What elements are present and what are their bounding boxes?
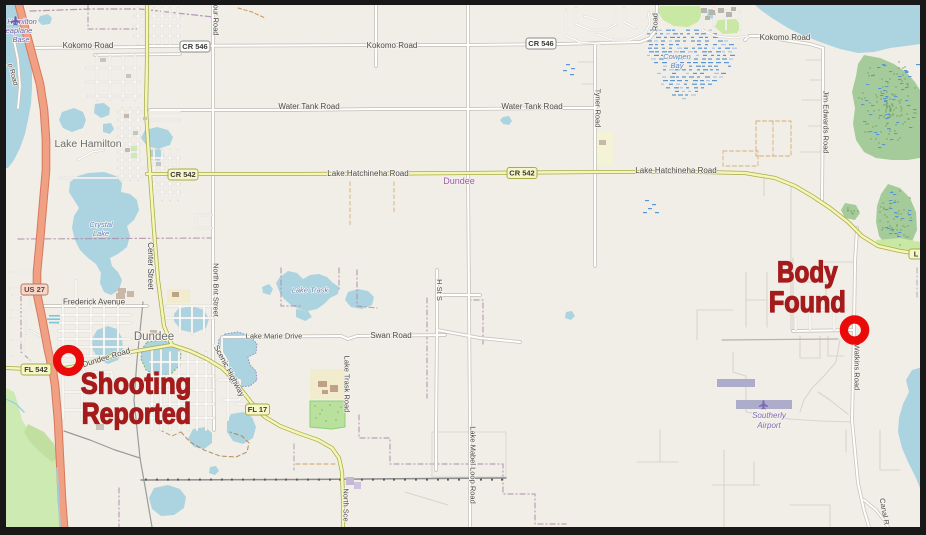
svg-text:Shooting: Shooting <box>81 367 191 400</box>
svg-text:Found: Found <box>769 285 846 319</box>
svg-text:Dundee: Dundee <box>134 331 174 343</box>
svg-text:L: L <box>914 250 919 259</box>
svg-text:CR 546: CR 546 <box>182 42 207 51</box>
svg-text:North Sce: North Sce <box>342 488 351 521</box>
svg-text:Kokomo Road: Kokomo Road <box>367 41 418 50</box>
svg-text:Frederick Avenue: Frederick Avenue <box>63 298 126 307</box>
svg-text:Watkins Road: Watkins Road <box>853 344 862 390</box>
svg-text:our Road: our Road <box>212 5 221 36</box>
svg-text:Jim Edwards Road: Jim Edwards Road <box>822 91 831 154</box>
svg-text:Road: Road <box>651 13 660 31</box>
svg-text:Reported: Reported <box>82 396 191 430</box>
svg-text:Water Tank Road: Water Tank Road <box>278 102 339 111</box>
svg-text:Base: Base <box>12 35 29 44</box>
svg-text:Lake Marie Drive: Lake Marie Drive <box>246 332 303 341</box>
svg-text:CR 542: CR 542 <box>509 169 534 178</box>
svg-text:Water Tank Road: Water Tank Road <box>501 102 562 111</box>
svg-text:Lake Hatchineha Road: Lake Hatchineha Road <box>635 166 716 175</box>
svg-text:US 27: US 27 <box>24 285 45 294</box>
svg-text:Lake Trask Road: Lake Trask Road <box>343 356 352 413</box>
svg-text:eaplane: eaplane <box>6 26 33 35</box>
svg-text:Tyner Road: Tyner Road <box>594 89 603 128</box>
svg-text:CR 542: CR 542 <box>170 170 195 179</box>
svg-text:Kokomo Road: Kokomo Road <box>63 41 114 50</box>
svg-text:Swan Road: Swan Road <box>370 331 411 340</box>
svg-text:Dundee: Dundee <box>443 176 475 186</box>
svg-text:Lake Mabel Loop Road: Lake Mabel Loop Road <box>469 426 478 504</box>
svg-text:Lake: Lake <box>93 229 109 238</box>
svg-text:Crystal: Crystal <box>89 220 113 229</box>
svg-text:Cowpen: Cowpen <box>663 52 691 61</box>
svg-text:Airport: Airport <box>756 421 781 430</box>
svg-text:Southerly: Southerly <box>752 411 787 420</box>
svg-text:Body: Body <box>777 255 838 289</box>
svg-text:FL 542: FL 542 <box>24 365 48 374</box>
svg-text:Center Street: Center Street <box>146 242 155 290</box>
svg-text:Bay: Bay <box>671 61 685 70</box>
svg-text:Lake Hatchineha Road: Lake Hatchineha Road <box>327 169 408 178</box>
svg-text:FL 17: FL 17 <box>248 405 267 414</box>
svg-text:H St S: H St S <box>435 279 444 301</box>
svg-text:North Bnt Street: North Bnt Street <box>212 263 221 318</box>
svg-text:Lake Trask: Lake Trask <box>292 286 330 295</box>
svg-text:Kokomo Road: Kokomo Road <box>760 33 811 42</box>
svg-text:Lake Hamilton: Lake Hamilton <box>54 138 121 150</box>
svg-text:CR 546: CR 546 <box>528 39 553 48</box>
